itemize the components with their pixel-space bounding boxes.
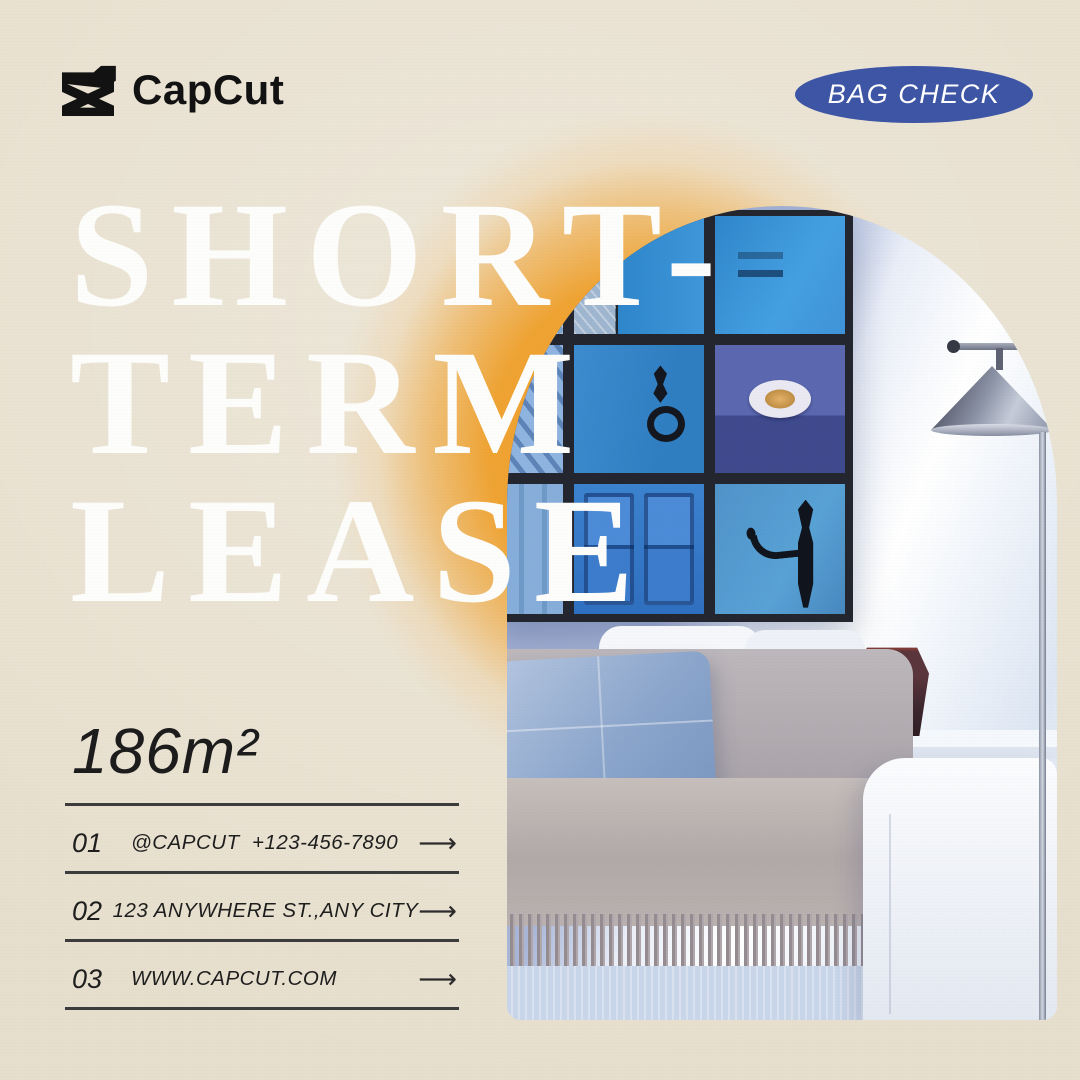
arrow-right-icon: ⟶ [418,828,459,859]
divider-line [65,939,459,942]
door-plate [749,380,811,418]
floor-lamp-shade [931,366,1053,430]
contact-row-2: 02 123 ANYWHERE ST.,ANY CITY ⟶ [65,888,459,934]
sofa-arm [863,758,1057,1020]
divider-line [65,871,459,874]
badge-label: BAG CHECK [828,79,1001,110]
floor-lamp-shade-rim [931,424,1053,436]
contact-address: 123 ANYWHERE ST.,ANY CITY [113,899,419,923]
door-cell-blue-flat [715,216,845,334]
contact-website: WWW.CAPCUT.COM [131,967,418,991]
headline: SHORT- TERM LEASE [70,181,734,625]
capcut-clapper-icon [58,64,118,116]
sofa-skirt [507,966,913,1020]
capcut-logo: CapCut [58,64,284,116]
contact-handle-phone: @CAPCUT +123-456-7890 [131,831,418,855]
arrow-right-icon: ⟶ [418,964,459,995]
door-cell-purple [715,345,845,473]
divider-line [65,803,459,806]
row-number: 03 [65,964,131,995]
door-handle-lever [750,531,804,562]
headline-line-1: SHORT- [70,181,734,329]
contact-row-3: 03 WWW.CAPCUT.COM ⟶ [65,956,459,1002]
row-number: 02 [65,896,113,927]
arrow-right-icon: ⟶ [418,896,459,927]
blanket-fringe [507,914,913,970]
headline-line-2: TERM [70,329,734,477]
divider-line [65,1007,459,1010]
bag-check-badge: BAG CHECK [795,66,1033,123]
floor-lamp-stem [996,348,1003,370]
area-size-label: 186m² [72,714,258,788]
row-number: 01 [65,828,131,859]
gray-blanket [507,778,913,926]
floor-lamp-pole [1039,432,1046,1020]
capcut-wordmark: CapCut [132,66,284,114]
door-cell-handle [715,484,845,614]
poster-canvas: CapCut BAG CHECK [0,0,1080,1080]
contact-row-1: 01 @CAPCUT +123-456-7890 ⟶ [65,820,459,866]
headline-line-3: LEASE [70,477,734,625]
